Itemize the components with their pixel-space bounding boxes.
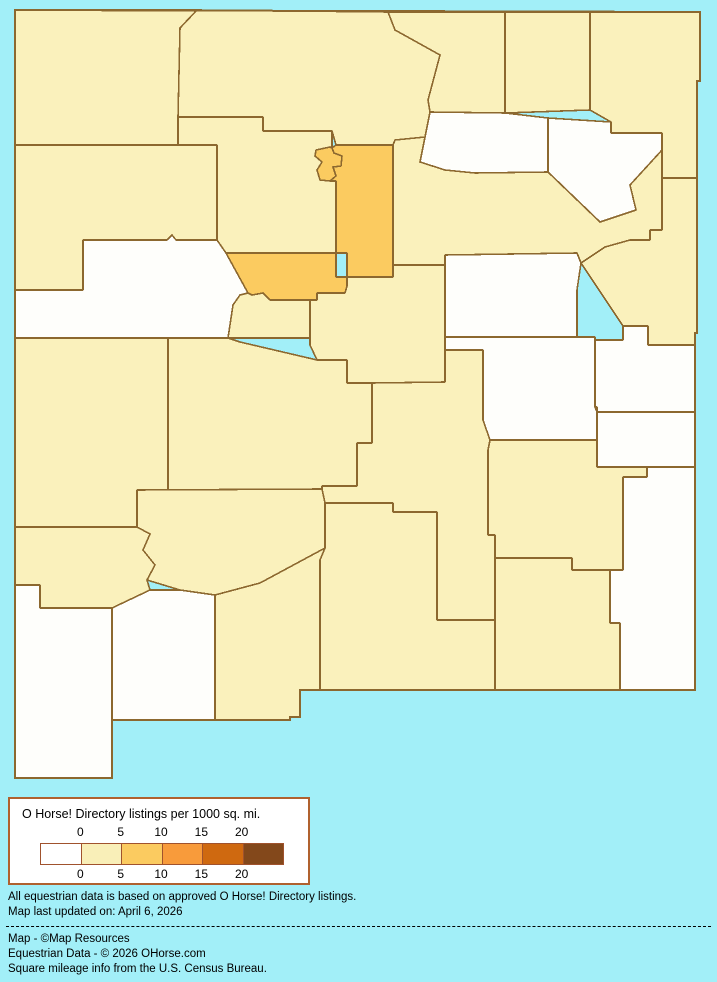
legend-tick-20: 20 xyxy=(235,825,248,839)
legend-color-3 xyxy=(163,844,204,864)
data-source-note: All equestrian data is based on approved… xyxy=(8,891,356,903)
legend-color-5 xyxy=(244,844,284,864)
legend-tick-5: 5 xyxy=(117,867,124,881)
page-background: O Horse! Directory listings per 1000 sq.… xyxy=(0,0,717,982)
county-luna[interactable] xyxy=(112,590,215,720)
map-copyright: Map - ©Map Resources xyxy=(8,933,130,945)
new-mexico-county-choropleth-map xyxy=(0,0,717,792)
legend-color-2 xyxy=(122,844,163,864)
county-guadalupe[interactable] xyxy=(445,253,581,337)
county-eddy[interactable] xyxy=(495,558,620,690)
legend-tick-0: 0 xyxy=(77,825,84,839)
legend-tick-20: 20 xyxy=(235,867,248,881)
legend-tick-10: 10 xyxy=(154,867,167,881)
legend-color-4 xyxy=(203,844,244,864)
legend-color-scale xyxy=(40,843,284,865)
county-san-juan[interactable] xyxy=(15,10,197,145)
legend-ticks-bottom: 05101520 xyxy=(40,867,282,881)
legend-ticks-top: 05101520 xyxy=(40,825,282,839)
data-copyright: Equestrian Data - © 2026 OHorse.com xyxy=(8,948,206,960)
legend-tick-0: 0 xyxy=(77,867,84,881)
county-socorro[interactable] xyxy=(168,338,372,490)
county-lea[interactable] xyxy=(610,467,695,690)
legend-box: O Horse! Directory listings per 1000 sq.… xyxy=(8,797,310,885)
legend-color-1 xyxy=(82,844,123,864)
census-credit: Square mileage info from the U.S. Census… xyxy=(8,963,267,975)
county-valencia[interactable] xyxy=(228,293,310,338)
county-colfax[interactable] xyxy=(505,12,590,113)
legend-tick-5: 5 xyxy=(117,825,124,839)
last-updated-note: Map last updated on: April 6, 2026 xyxy=(8,906,183,918)
legend-tick-15: 15 xyxy=(195,867,208,881)
county-mora[interactable] xyxy=(420,112,548,173)
legend-title: O Horse! Directory listings per 1000 sq.… xyxy=(22,807,260,821)
legend-tick-15: 15 xyxy=(195,825,208,839)
legend-tick-10: 10 xyxy=(154,825,167,839)
county-hidalgo[interactable] xyxy=(15,585,112,778)
legend-color-0 xyxy=(41,844,82,864)
dashed-separator xyxy=(6,926,711,927)
